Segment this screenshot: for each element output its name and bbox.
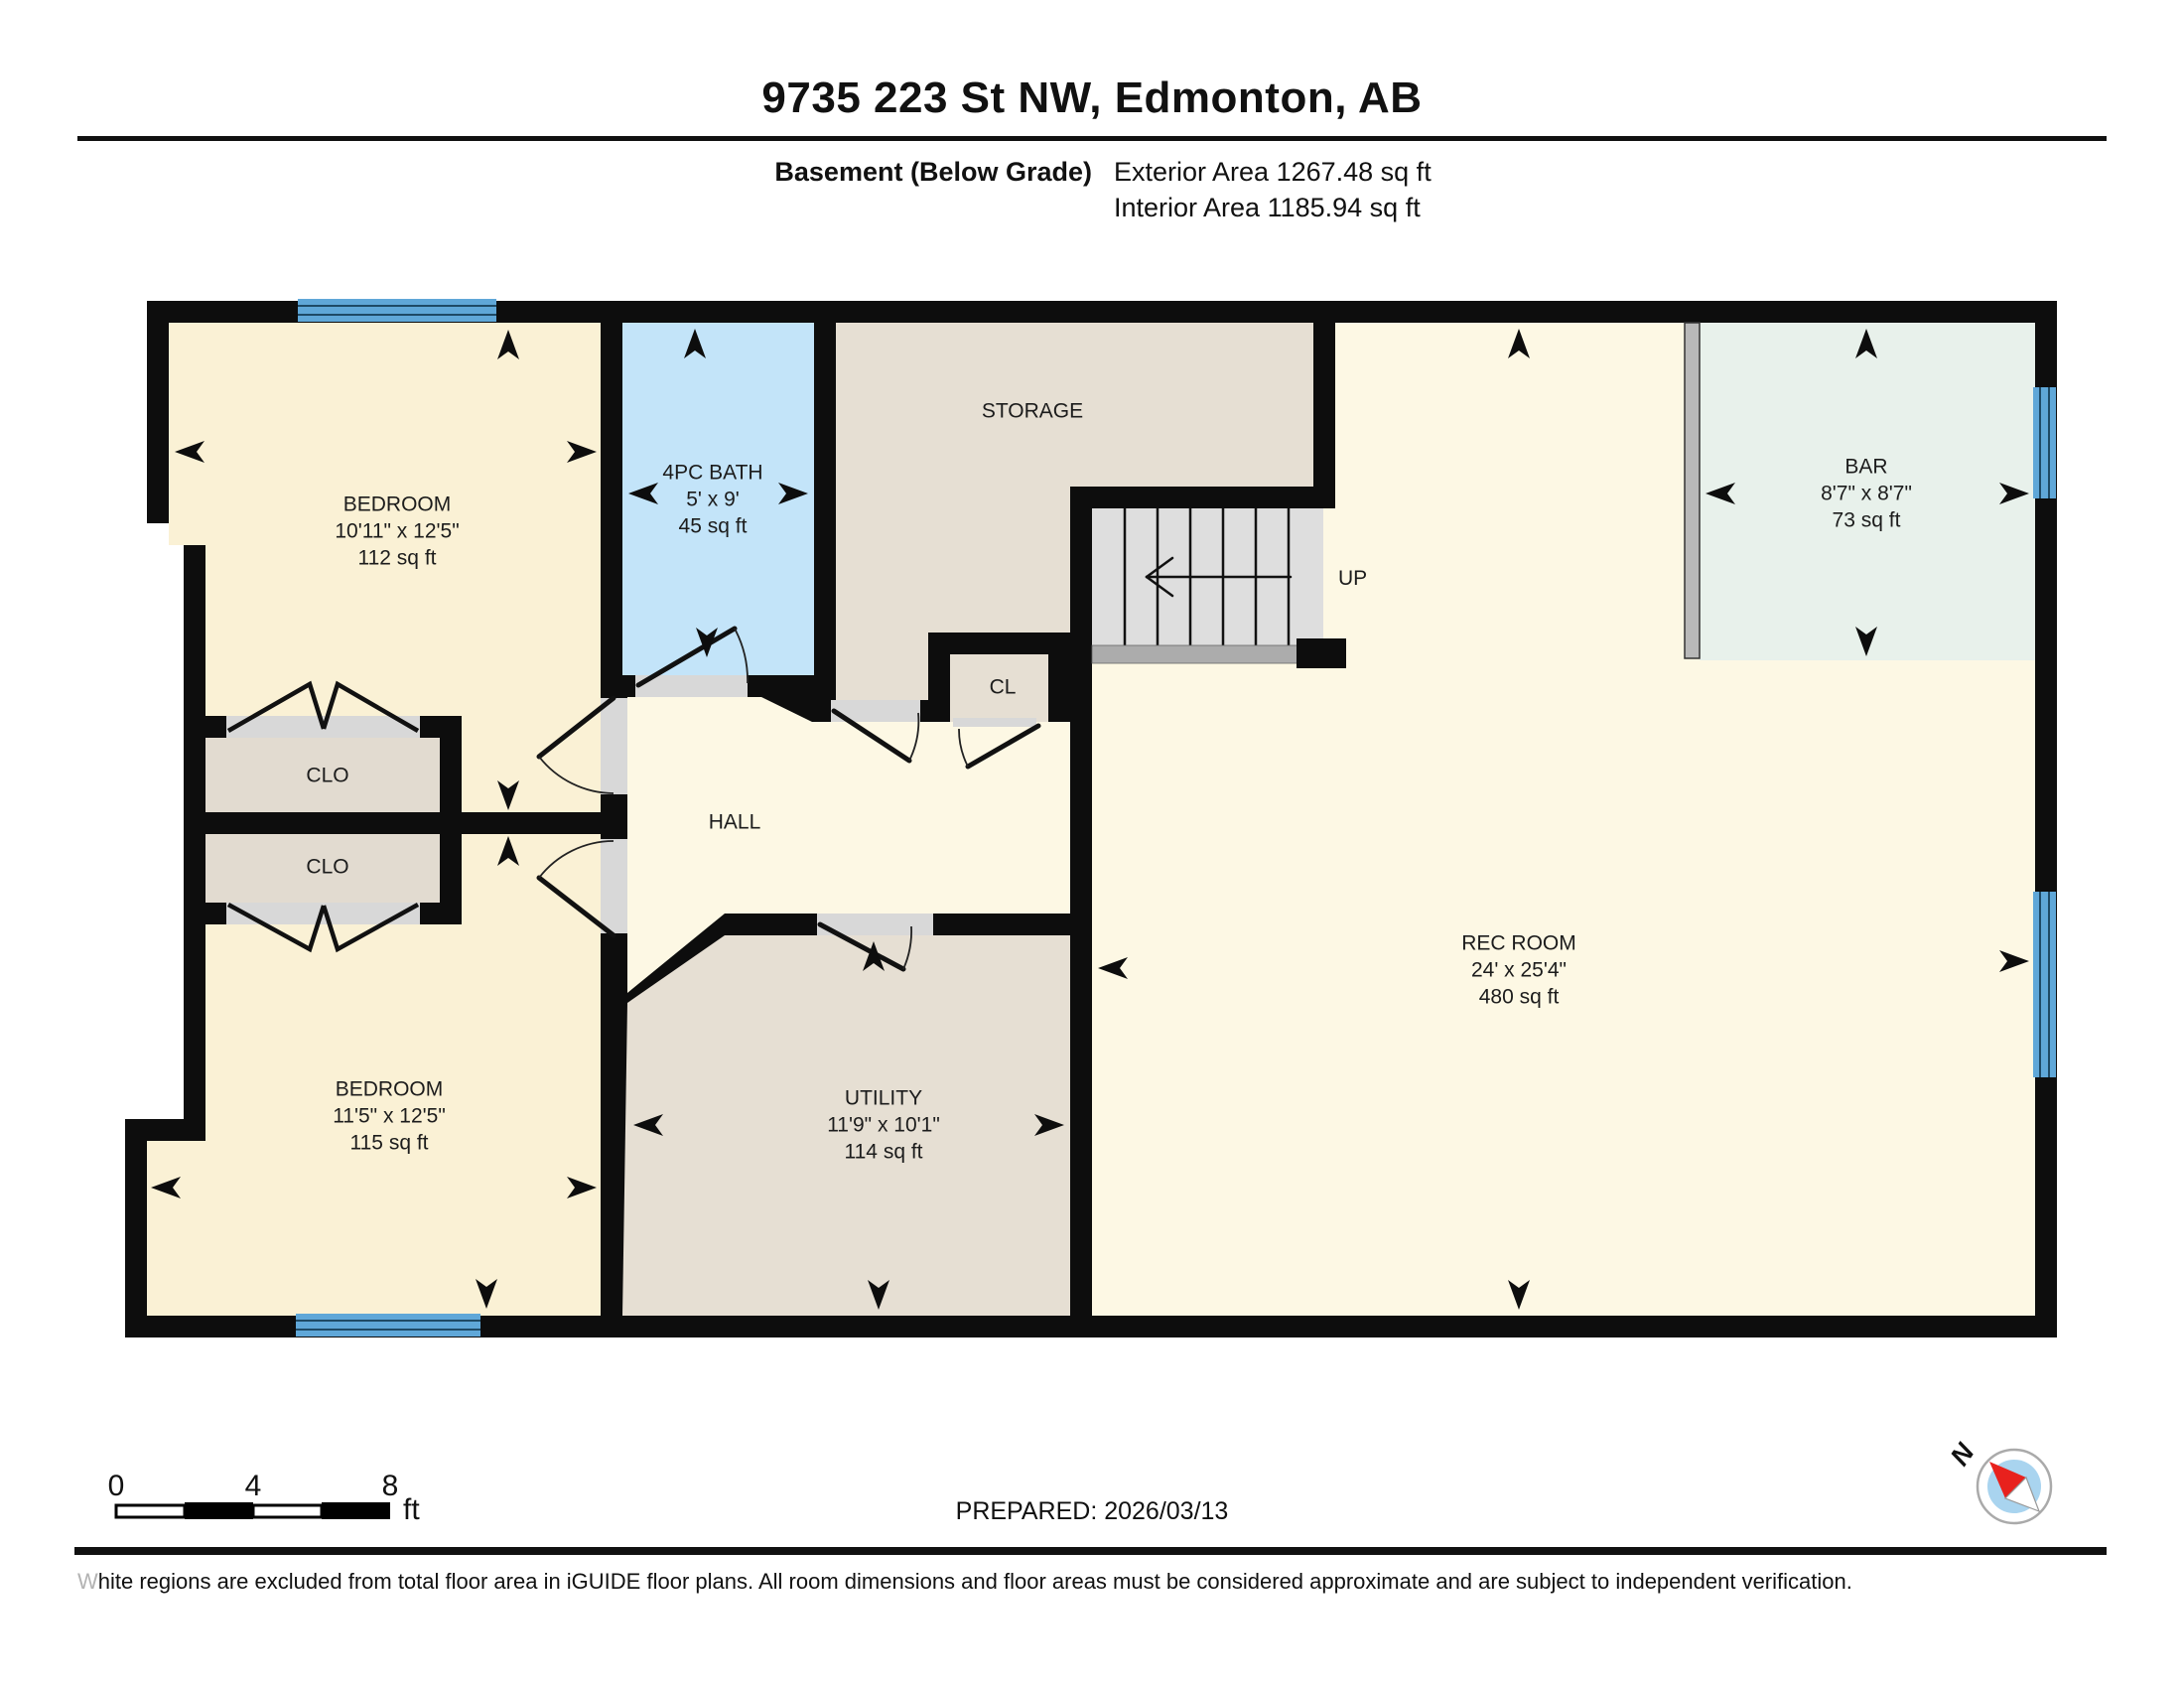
room-label-bath: 4PC BATH 5' x 9' 45 sq ft (662, 460, 762, 540)
window-bar-right (2033, 387, 2056, 498)
interior-area: Interior Area 1185.94 sq ft (1114, 193, 1421, 223)
room-area: 480 sq ft (1461, 984, 1576, 1011)
disclaimer-text: White regions are excluded from total fl… (77, 1569, 1964, 1595)
room-dims: 5' x 9' (662, 487, 762, 513)
window-rec-right (2033, 892, 2056, 1077)
room-area: 45 sq ft (662, 513, 762, 540)
room-name: UTILITY (827, 1085, 940, 1112)
bar-counter (1685, 323, 1700, 658)
stair-landing (1092, 645, 1298, 663)
room-label-hall: HALL (709, 809, 761, 836)
room-area: 114 sq ft (827, 1139, 940, 1166)
room-name: BEDROOM (335, 492, 459, 518)
room-label-cl: CL (990, 674, 1017, 701)
room-label-closet-2: CLO (306, 854, 348, 881)
floor-label: Basement (Below Grade) (0, 157, 1092, 188)
exterior-area: Exterior Area 1267.48 sq ft (1114, 157, 1432, 188)
room-area: 112 sq ft (335, 545, 459, 572)
room-dims: 11'9" x 10'1" (827, 1112, 940, 1139)
room-name: CL (990, 674, 1017, 701)
room-dims: 8'7" x 8'7" (1821, 481, 1912, 507)
window-bedroom2-bottom (296, 1314, 480, 1336)
room-label-closet-1: CLO (306, 763, 348, 789)
room-dims: 11'5" x 12'5" (333, 1103, 446, 1130)
room-name: BEDROOM (333, 1076, 446, 1103)
room-label-utility: UTILITY 11'9" x 10'1" 114 sq ft (827, 1085, 940, 1166)
room-name: REC ROOM (1461, 930, 1576, 957)
prepared-date: PREPARED: 2026/03/13 (0, 1497, 2184, 1526)
stair-newel-block (1297, 638, 1346, 668)
room-dims: 24' x 25'4" (1461, 957, 1576, 984)
page-title: 9735 223 St NW, Edmonton, AB (0, 73, 2184, 123)
floor-plan-page: N 9735 223 St NW, Edmonton, AB Basement … (0, 0, 2184, 1688)
room-area: 73 sq ft (1821, 507, 1912, 534)
floor-plan-drawing: N (0, 0, 2184, 1688)
room-name: CLO (306, 763, 348, 789)
room-name: STORAGE (982, 398, 1083, 425)
compass-north-label: N (1945, 1438, 1980, 1472)
room-name: HALL (709, 809, 761, 836)
room-dims: 10'11" x 12'5" (335, 518, 459, 545)
room-label-bedroom-1: BEDROOM 10'11" x 12'5" 112 sq ft (335, 492, 459, 572)
room-label-storage: STORAGE (982, 398, 1083, 425)
room-name: BAR (1821, 454, 1912, 481)
room-name: 4PC BATH (662, 460, 762, 487)
window-bedroom1-top (298, 299, 496, 322)
room-label-rec-room: REC ROOM 24' x 25'4" 480 sq ft (1461, 930, 1576, 1011)
stairs-up-label: UP (1338, 567, 1367, 591)
room-name: CLO (306, 854, 348, 881)
footer-rule (74, 1547, 2107, 1555)
header-rule (77, 136, 2107, 141)
stairs (1092, 508, 1346, 668)
room-label-bedroom-2: BEDROOM 11'5" x 12'5" 115 sq ft (333, 1076, 446, 1157)
room-area: 115 sq ft (333, 1130, 446, 1157)
room-label-bar: BAR 8'7" x 8'7" 73 sq ft (1821, 454, 1912, 534)
